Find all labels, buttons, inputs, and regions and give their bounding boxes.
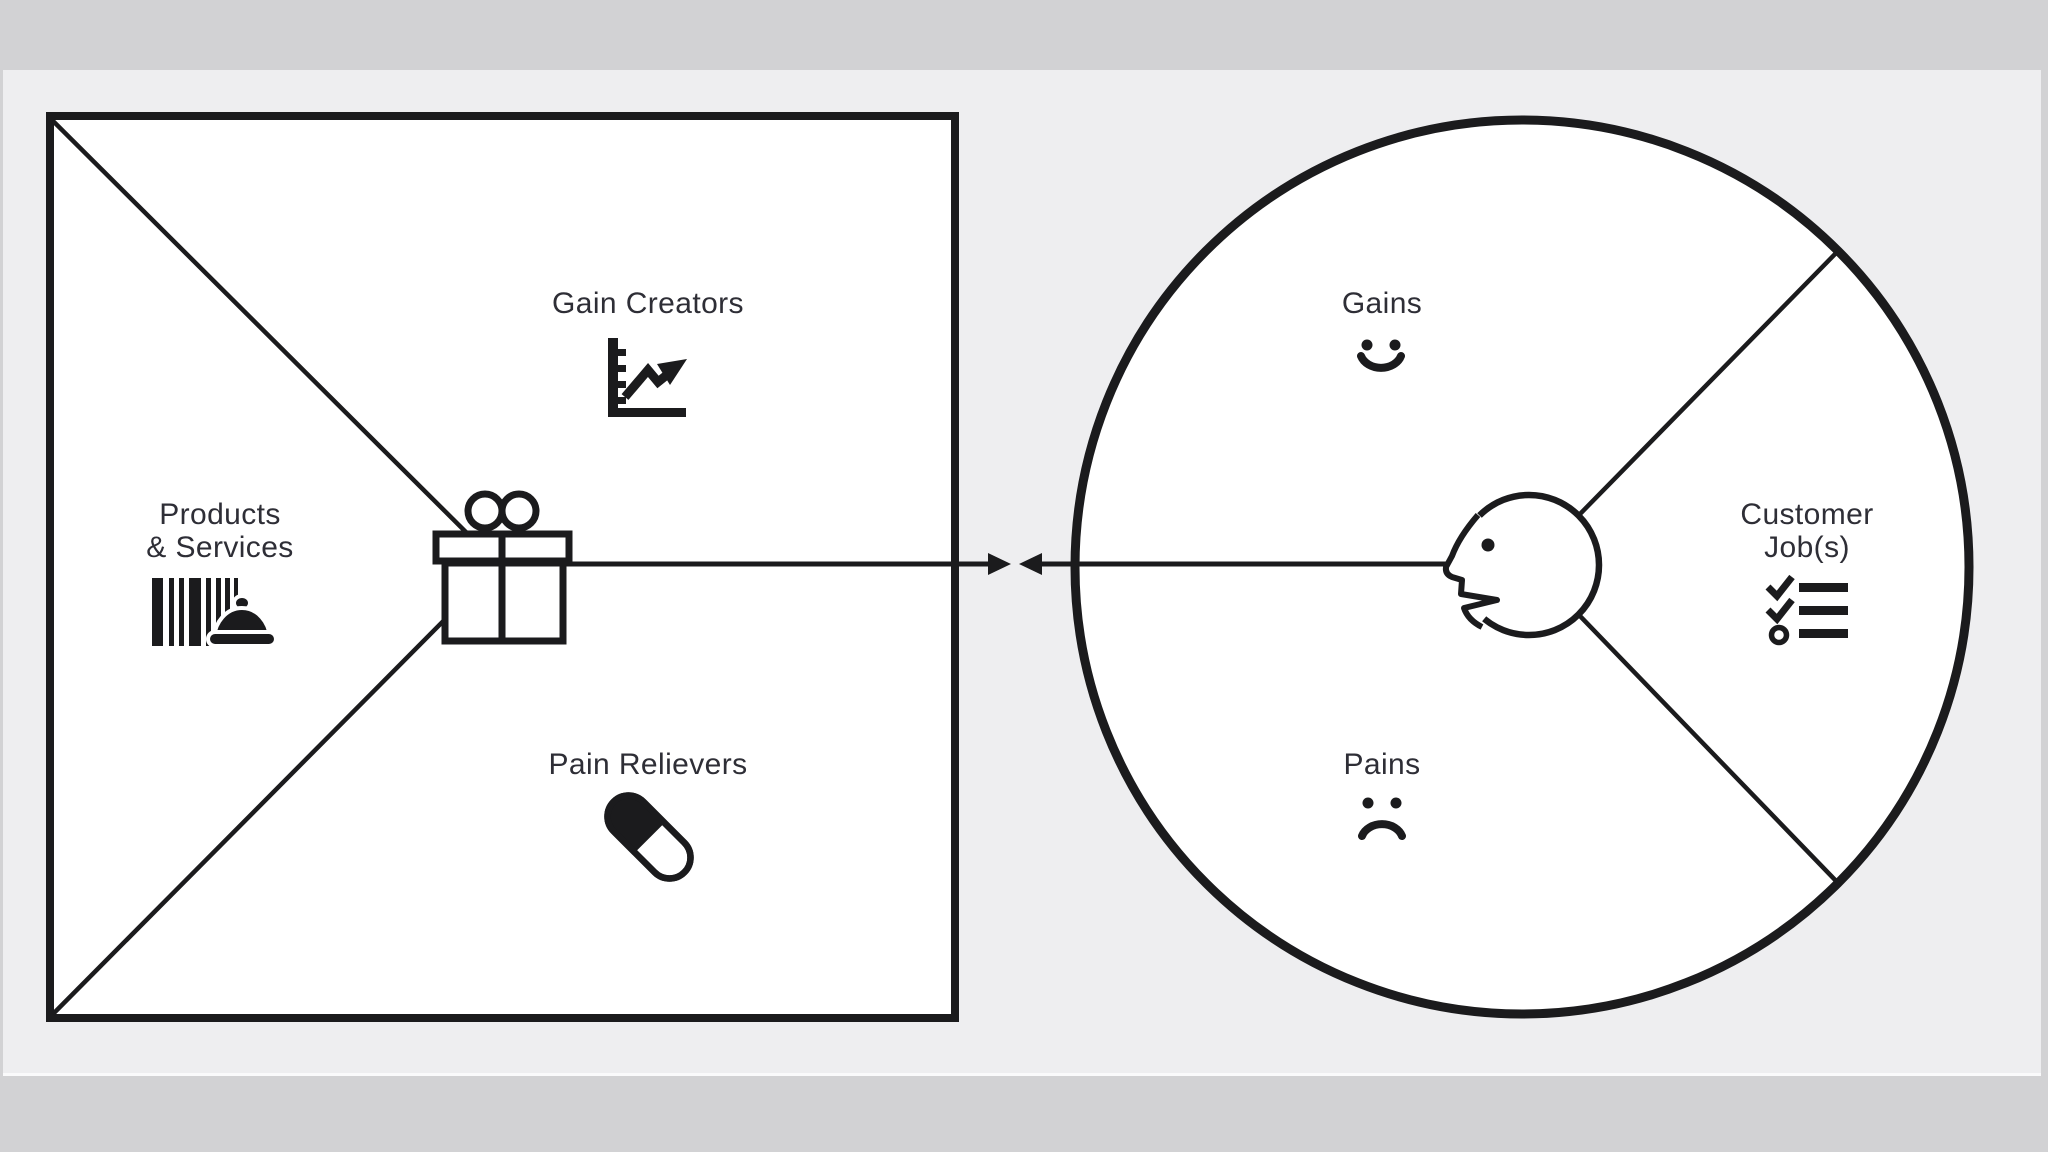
products-services-label: Products & Services [146,498,293,564]
value-proposition-canvas: Gain Creators Products & Services Pain R… [0,0,2048,1152]
customer-jobs-label: Customer Job(s) [1740,498,1873,564]
pain-relievers-label: Pain Relievers [548,748,747,781]
head-profile-icon [1446,495,1599,635]
gains-label: Gains [1342,287,1422,320]
pains-label: Pains [1343,748,1420,781]
canvas-diagram [0,0,2048,1152]
gain-creators-label: Gain Creators [552,287,744,320]
